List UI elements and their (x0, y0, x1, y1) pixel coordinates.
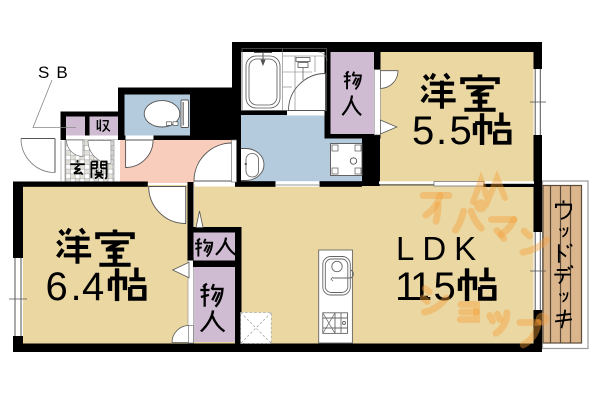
svg-text:SB: SB (38, 63, 75, 82)
svg-text:LDK: LDK (396, 230, 484, 267)
svg-text:5.5: 5.5 (412, 109, 472, 153)
svg-text:6.4: 6.4 (46, 265, 105, 309)
